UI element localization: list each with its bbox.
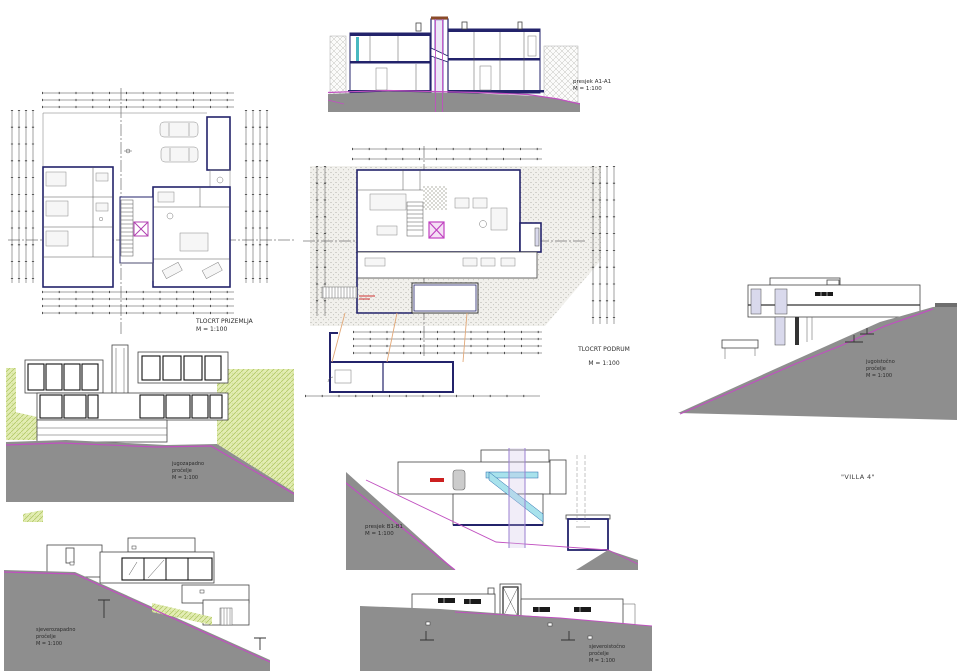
section-a1-svg [328, 6, 580, 112]
elevation-direction: jugozapadno [172, 461, 204, 468]
building-elevation [25, 345, 228, 442]
elevation-word: pročelje [866, 366, 895, 373]
elevation-word: pročelje [36, 634, 75, 641]
building-section [398, 450, 610, 550]
building-section [348, 17, 544, 100]
section-a1-drawing [328, 6, 580, 112]
section-b1-drawing [346, 442, 638, 570]
elevation-word: pročelje [589, 651, 625, 658]
southwest-elevation [6, 332, 294, 502]
architectural-sheet: presjek A1-A1 M = 1:100 [0, 0, 960, 671]
northwest-elevation-label: sjeverozapadno pročelje M = 1:100 [36, 627, 75, 647]
hillside [678, 305, 957, 420]
elevation-word: pročelje [172, 468, 204, 475]
ground-floor-plan [8, 88, 294, 340]
southwest-elevation-svg [6, 332, 294, 502]
exterior-stairs [322, 287, 357, 298]
elevation-scale: M = 1:100 [866, 373, 895, 380]
pool-section [566, 515, 610, 550]
elevation-scale: M = 1:100 [36, 641, 75, 648]
tiled-floor [423, 186, 447, 210]
terrace-pool [412, 283, 478, 313]
basement-plan-scale: M = 1:100 [572, 360, 636, 368]
basement-plan-title: TLOCRT PODRUM [572, 346, 636, 354]
section-a1-title: presjek A1-A1 [573, 79, 611, 86]
elevation-direction: sjeverozapadno [36, 627, 75, 634]
elevation-scale: M = 1:100 [589, 658, 625, 665]
southeast-elevation-label: jugoistočno pročelje M = 1:100 [866, 359, 895, 379]
section-b1-title: presjek B1-B1 [365, 524, 403, 531]
section-a1-label: presjek A1-A1 M = 1:100 [573, 79, 611, 94]
project-title: "VILLA 4" [841, 473, 875, 482]
elevator-shaft [431, 17, 448, 100]
floor-plan-walls [43, 113, 230, 287]
section-b1-svg [346, 442, 638, 570]
southwest-elevation-label: jugozapadno pročelje M = 1:100 [172, 461, 204, 481]
basement-plan-label: TLOCRT PODRUM M = 1:100 [572, 346, 636, 368]
section-b1-label: presjek B1-B1 M = 1:100 [365, 524, 403, 539]
elevation-direction: jugoistočno [866, 359, 895, 366]
section-a1-scale: M = 1:100 [573, 86, 611, 93]
elevation-scale: M = 1:100 [172, 475, 204, 482]
ground-floor-plan-title: TLOCRT PRIZEMLJA [196, 318, 253, 326]
elevation-direction: sjeveroistočno [589, 644, 625, 651]
car-top-view-icon [160, 122, 198, 162]
ground-floor-plan-svg [8, 88, 294, 340]
section-b1-scale: M = 1:100 [365, 531, 403, 538]
southeast-elevation [655, 256, 957, 422]
elevator-symbol [429, 222, 444, 238]
northeast-elevation-label: sjeveroistočno pročelje M = 1:100 [589, 644, 625, 664]
detached-pool [328, 332, 453, 392]
southeast-elevation-svg [655, 256, 957, 422]
elevator-shaft-lines [509, 448, 525, 548]
